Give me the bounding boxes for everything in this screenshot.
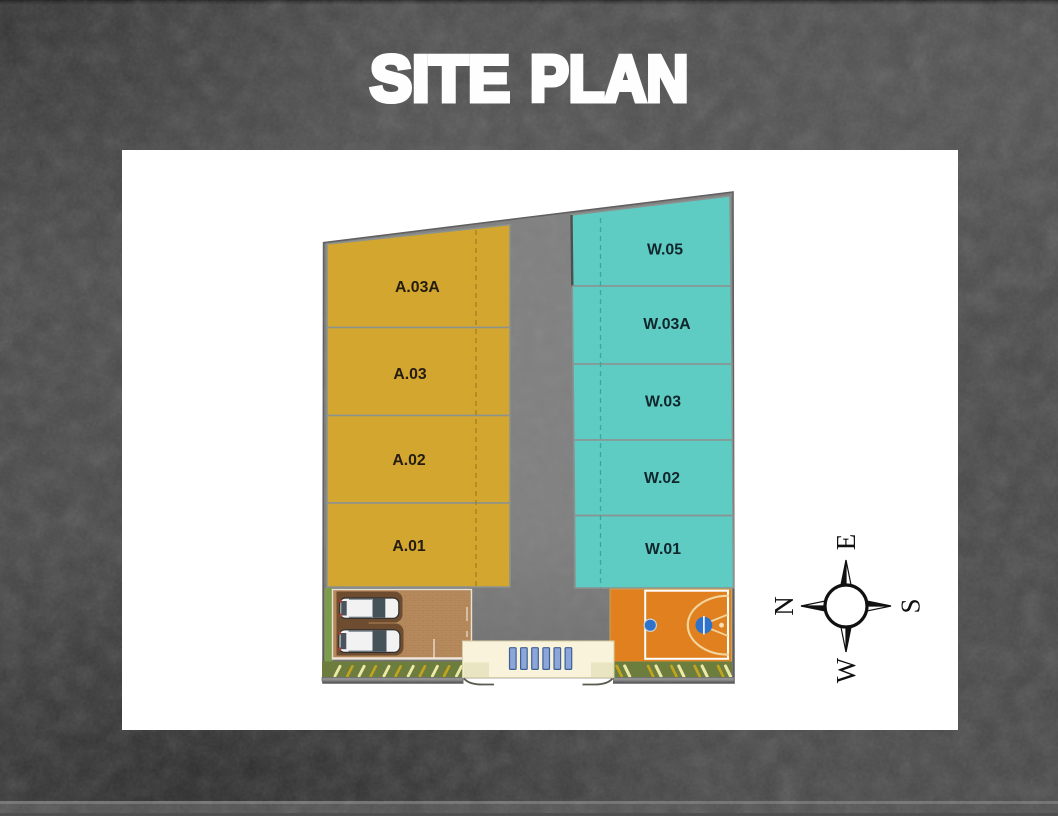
- svg-text:W.02: W.02: [644, 470, 680, 487]
- svg-text:A.01: A.01: [392, 538, 426, 555]
- svg-text:W.05: W.05: [647, 242, 683, 259]
- svg-text:A.02: A.02: [392, 452, 426, 469]
- svg-text:A.03: A.03: [393, 366, 427, 383]
- svg-text:A.03A: A.03A: [395, 279, 440, 296]
- svg-text:N: N: [769, 596, 799, 616]
- svg-text:W: W: [831, 657, 861, 683]
- svg-text:W.01: W.01: [645, 541, 681, 558]
- svg-text:S: S: [896, 598, 926, 613]
- svg-text:W.03A: W.03A: [643, 316, 690, 333]
- svg-text:E: E: [831, 534, 861, 551]
- svg-text:W.03: W.03: [645, 394, 681, 411]
